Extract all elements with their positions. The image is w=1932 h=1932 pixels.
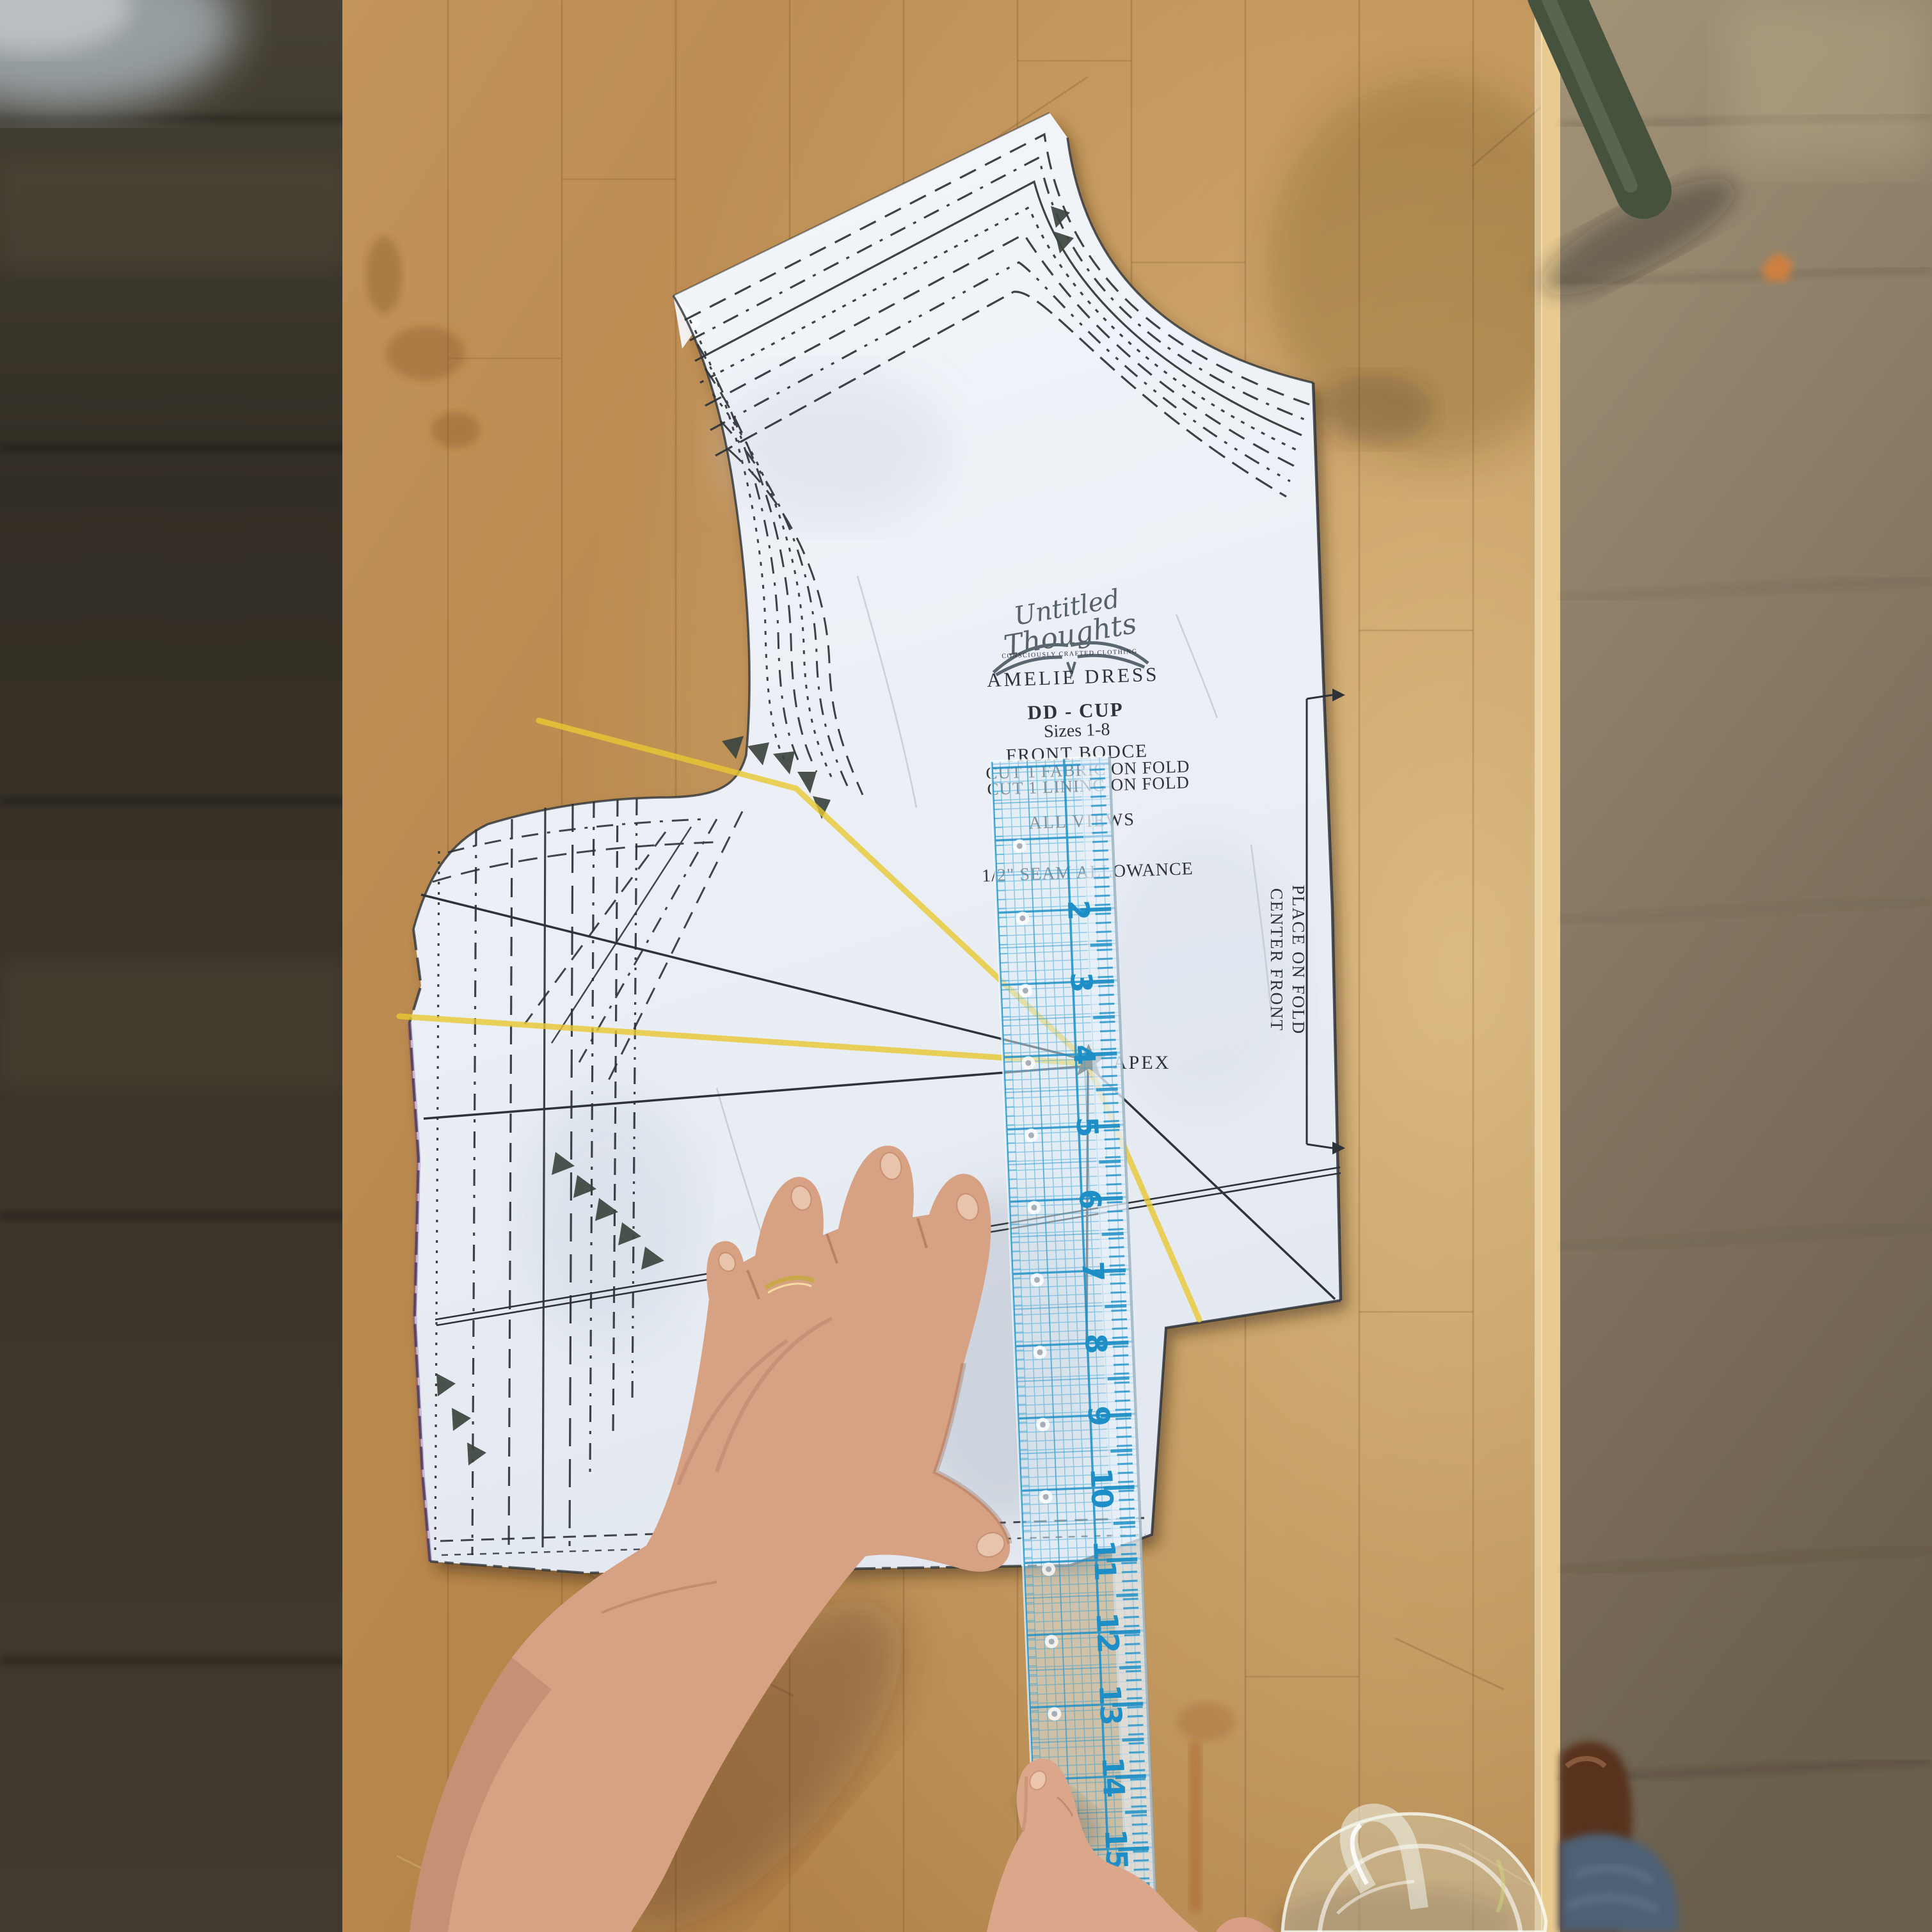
right-floor bbox=[1528, 0, 1932, 1932]
ruler-number: 4 bbox=[1067, 1044, 1102, 1066]
ruler-number: 5 bbox=[1069, 1116, 1105, 1138]
scene-canvas: Untitled Thoughts CONSCIOUSLY CRAFTED CL… bbox=[0, 0, 1932, 1932]
sizes-label: Sizes 1-8 bbox=[1043, 719, 1110, 742]
ruler-number: 7 bbox=[1075, 1261, 1110, 1282]
ruler-number: 3 bbox=[1064, 971, 1099, 993]
ruler-number: 13 bbox=[1092, 1684, 1129, 1726]
wood-stain-streak bbox=[1189, 1741, 1202, 1913]
ruler-number: 14 bbox=[1096, 1756, 1132, 1798]
ruler-number: 11 bbox=[1087, 1539, 1123, 1581]
center-front-label: CENTER FRONT bbox=[1267, 888, 1286, 1032]
place-on-fold-label: PLACE ON FOLD bbox=[1289, 885, 1308, 1035]
left-floor bbox=[0, 0, 346, 1932]
ruler-number: 10 bbox=[1083, 1467, 1120, 1510]
ruler-number: 2 bbox=[1061, 899, 1096, 921]
ruler-number: 9 bbox=[1081, 1405, 1116, 1427]
ruler-number: 12 bbox=[1089, 1611, 1126, 1654]
ruler-number: 6 bbox=[1073, 1188, 1108, 1210]
photo-scene: Untitled Thoughts CONSCIOUSLY CRAFTED CL… bbox=[0, 0, 1932, 1932]
ruler-number: 8 bbox=[1078, 1333, 1114, 1355]
